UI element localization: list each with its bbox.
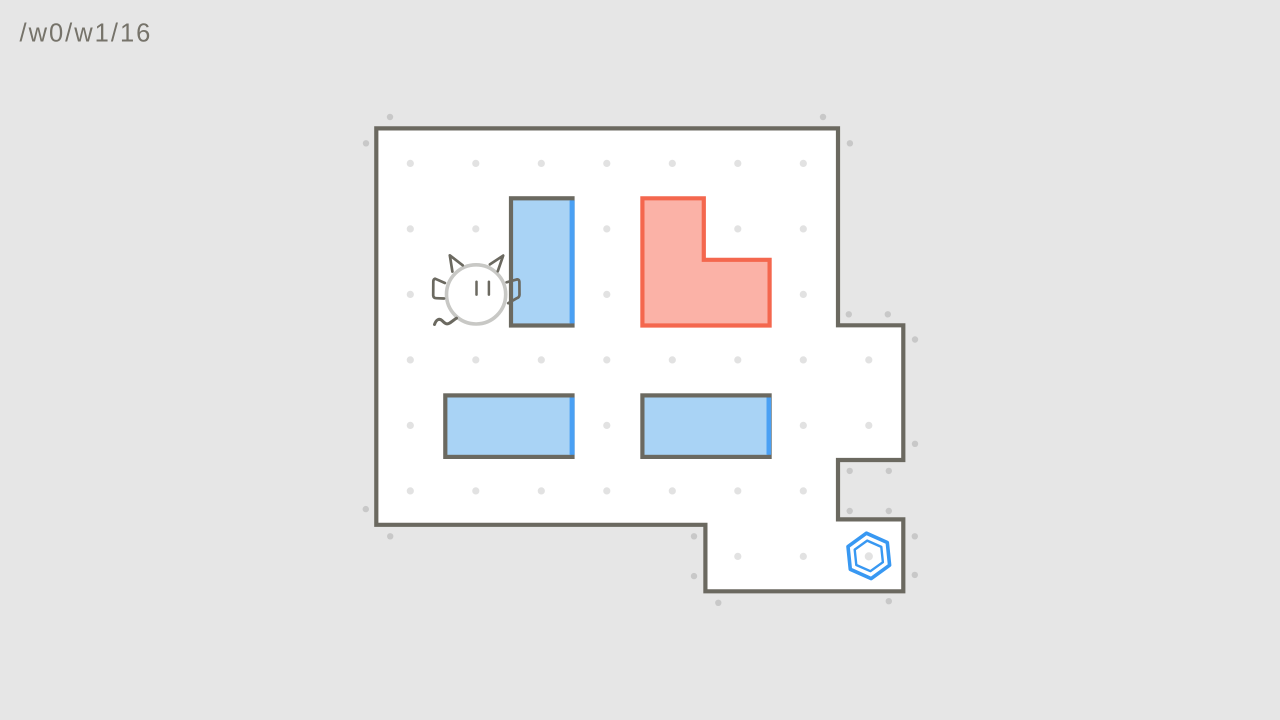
svg-text:/w0/w1/16: /w0/w1/16: [20, 20, 153, 48]
